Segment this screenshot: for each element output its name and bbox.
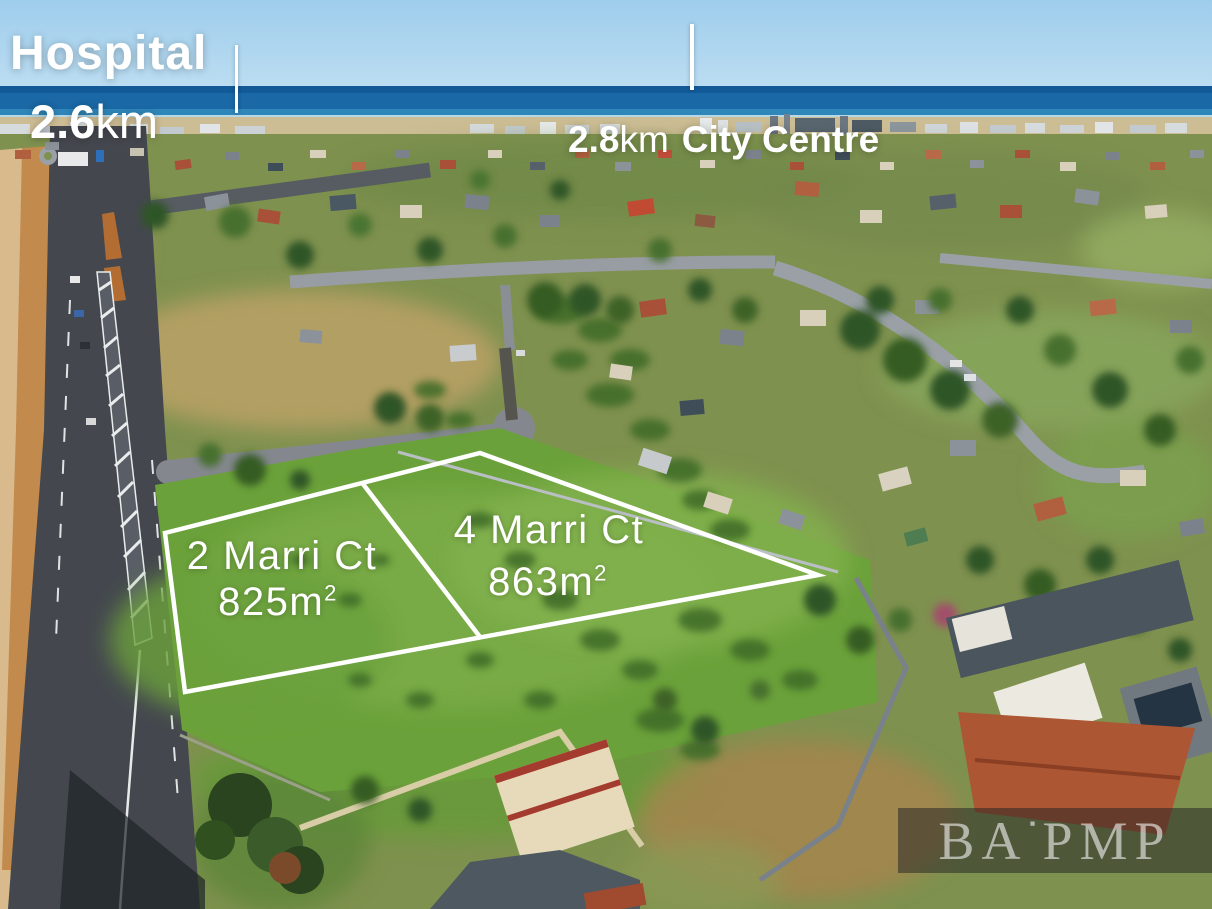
- watermark-separator: ▪: [1029, 815, 1035, 832]
- hospital-label: Hospital: [10, 26, 207, 81]
- lot-4-area-unit: m: [559, 560, 594, 604]
- hospital-distance: 2.6km: [30, 94, 158, 149]
- ocean: [0, 86, 1212, 118]
- lot-4-name: 4 Marri Ct: [419, 508, 679, 553]
- watermark-left-text: BA: [938, 814, 1027, 868]
- lot-2-name: 2 Marri Ct: [152, 534, 412, 579]
- hospital-title-text: Hospital: [10, 27, 207, 80]
- city-centre-distance-unit: km: [619, 119, 668, 160]
- watermark: BA ▪ PMP: [898, 808, 1212, 873]
- city-centre-marker-line: [690, 24, 694, 90]
- lot-2-area-superscript: 2: [324, 581, 338, 606]
- aerial-listing-photo: Hospital 2.6km 2.8kmCity Centre 2 Marri …: [0, 0, 1212, 909]
- hospital-marker-line: [235, 45, 238, 113]
- lot-4-area: 863m2: [448, 560, 648, 605]
- watermark-right-text: PMP: [1042, 814, 1171, 868]
- lot-2-area-unit: m: [289, 580, 324, 624]
- lot-4-area-value: 863: [488, 560, 559, 604]
- city-centre-label: 2.8kmCity Centre: [568, 119, 879, 161]
- lot-4-area-superscript: 2: [594, 561, 608, 586]
- hospital-distance-value: 2.6: [30, 95, 95, 148]
- city-centre-distance-value: 2.8: [568, 119, 619, 160]
- hospital-distance-unit: km: [95, 95, 158, 148]
- city-centre-title-text: City Centre: [682, 119, 879, 160]
- lot-2-area: 825m2: [178, 580, 378, 625]
- lot-2-area-value: 825: [218, 580, 289, 624]
